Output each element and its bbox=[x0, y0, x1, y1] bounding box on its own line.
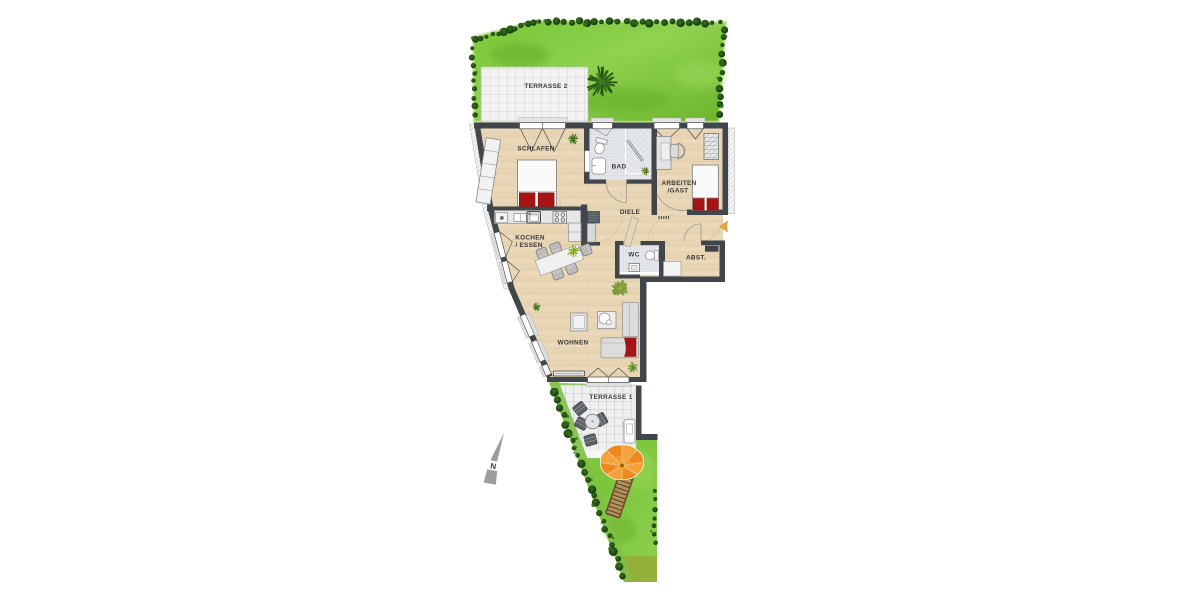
svg-text:ABST.: ABST. bbox=[686, 255, 706, 262]
svg-text:WOHNEN: WOHNEN bbox=[558, 339, 589, 346]
svg-text:TERRASSE 1: TERRASSE 1 bbox=[589, 394, 632, 401]
svg-text:WC: WC bbox=[628, 252, 639, 259]
svg-text:/GAST: /GAST bbox=[667, 188, 688, 195]
svg-text:SCHLAFEN: SCHLAFEN bbox=[517, 146, 554, 153]
svg-text:DIELE: DIELE bbox=[620, 209, 641, 216]
svg-text:/ ESSEN: / ESSEN bbox=[515, 242, 542, 249]
svg-text:BAD: BAD bbox=[612, 164, 627, 171]
svg-text:KOCHEN: KOCHEN bbox=[515, 235, 545, 242]
svg-text:ARBEITEN: ARBEITEN bbox=[661, 180, 696, 187]
svg-text:TERRASSE 2: TERRASSE 2 bbox=[524, 83, 567, 90]
